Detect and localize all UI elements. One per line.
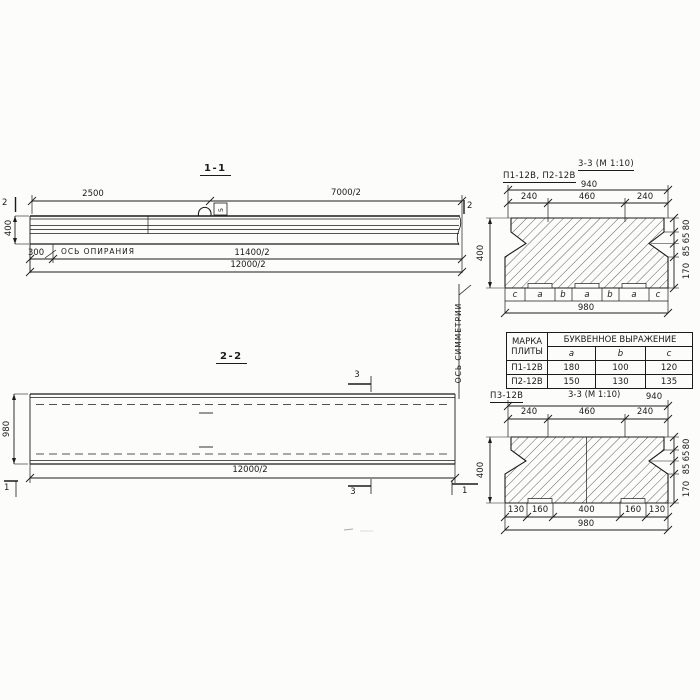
- dim-240-left-plates12: 240: [513, 192, 545, 202]
- dim-980-plate3: 980: [572, 519, 600, 529]
- hatched-cross-section-plates12: [505, 218, 668, 288]
- cut-marker-3-top: 3: [350, 370, 364, 380]
- table-group-header: БУКВЕННОЕ ВЫРАЖЕНИЕ: [548, 333, 693, 347]
- dim-170-plate3: 170: [682, 477, 692, 501]
- dim-400-plate3: 400: [476, 458, 486, 482]
- segment-letter-c2: c: [651, 290, 665, 300]
- dim-980-plan: 980: [2, 417, 12, 441]
- cut-marker-1-left: 1: [4, 483, 9, 493]
- segment-letter-c1: c: [508, 290, 522, 300]
- lifting-hook-icon: [198, 207, 211, 216]
- plate-dimension-table: МАРКА ПЛИТЫ БУКВЕННОЕ ВЫРАЖЕНИЕ a b c П1…: [506, 332, 693, 389]
- dim-130-right-plate3: 130: [644, 505, 670, 515]
- drawing-sheet: 1-1 2 2500 7000/2 2 400 300 ОСЬ ОПИРАНИЯ…: [0, 0, 700, 700]
- dim-240-right-plates12: 240: [629, 192, 661, 202]
- segment-letter-a1: a: [533, 290, 547, 300]
- section-3-3-plate3-title: 3-3 (М 1:10): [568, 390, 620, 400]
- plates12-label: П1-12В, П2-12В: [503, 171, 576, 183]
- symmetry-axis-label: ОСЬ СИММЕТРИИ: [454, 301, 464, 385]
- table-row-p2-a: 150: [548, 375, 596, 389]
- table-row-p1: П1-12В 180 100 120: [507, 361, 693, 375]
- dim-7000-half: 7000/2: [318, 188, 374, 198]
- segment-letter-b2: b: [603, 290, 617, 300]
- table-row-p2-c: 135: [646, 375, 693, 389]
- section-3-3-plates12-title: 3-3 (М 1:10): [578, 159, 634, 171]
- segment-letter-b1: b: [556, 290, 570, 300]
- bearing-axis-label: ОСЬ ОПИРАНИЯ: [61, 247, 135, 257]
- scan-artifact: [344, 529, 373, 531]
- dim-400-plates12: 400: [476, 241, 486, 265]
- dim-2500: 2500: [68, 189, 118, 199]
- dim-160-left-plate3: 160: [527, 505, 553, 515]
- dim-300: 300: [25, 248, 47, 258]
- table-row-p1-a: 180: [548, 361, 596, 375]
- dim-12000-half-elevation: 12000/2: [220, 260, 276, 270]
- cut-marker-2-right: 2: [467, 201, 472, 211]
- table-col-a: a: [548, 347, 596, 361]
- cut-marker-2-left: 2: [2, 198, 7, 208]
- table-col-c: c: [646, 347, 693, 361]
- dim-400-bottom-plate3: 400: [573, 505, 600, 515]
- segment-letter-a2: a: [580, 290, 594, 300]
- plate3-label: П3-12В: [490, 391, 523, 403]
- dim-940-plates12: 940: [574, 180, 604, 190]
- cut-marker-1-right: 1: [462, 486, 467, 496]
- hook-tag-label: 5: [216, 204, 226, 216]
- segment-letter-a3: a: [627, 290, 641, 300]
- dim-11400-half: 11400/2: [224, 248, 280, 258]
- dim-460-plate3: 460: [570, 407, 604, 417]
- table-row-p1-mark: П1-12В: [507, 361, 548, 375]
- dim-460-plates12: 460: [570, 192, 604, 202]
- dim-160-right-plate3: 160: [620, 505, 646, 515]
- dim-12000-half-plan: 12000/2: [222, 465, 278, 475]
- dim-400-beam-height: 400: [4, 216, 14, 240]
- table-row-p1-b: 100: [596, 361, 646, 375]
- section-2-2-linework: [4, 376, 478, 497]
- cut-marker-3-bottom: 3: [346, 487, 360, 497]
- table-row-p2-b: 130: [596, 375, 646, 389]
- section-2-2-title: 2-2: [216, 352, 247, 364]
- dim-940-plate3: 940: [641, 392, 667, 402]
- dim-240-right-plate3: 240: [629, 407, 661, 417]
- table-row-p2: П2-12В 150 130 135: [507, 375, 693, 389]
- dim-240-left-plate3: 240: [513, 407, 545, 417]
- dim-980-plates12: 980: [572, 303, 600, 313]
- section-1-1-title: 1-1: [200, 164, 231, 176]
- dim-130-left-plate3: 130: [503, 505, 529, 515]
- table-col-b: b: [596, 347, 646, 361]
- table-row-p1-c: 120: [646, 361, 693, 375]
- table-mark-header: МАРКА ПЛИТЫ: [507, 333, 548, 361]
- table-mark-header-line1: МАРКА: [508, 337, 546, 347]
- table-row-p2-mark: П2-12В: [507, 375, 548, 389]
- dim-170-plates12: 170: [682, 259, 692, 283]
- table-mark-header-line2: ПЛИТЫ: [508, 347, 546, 357]
